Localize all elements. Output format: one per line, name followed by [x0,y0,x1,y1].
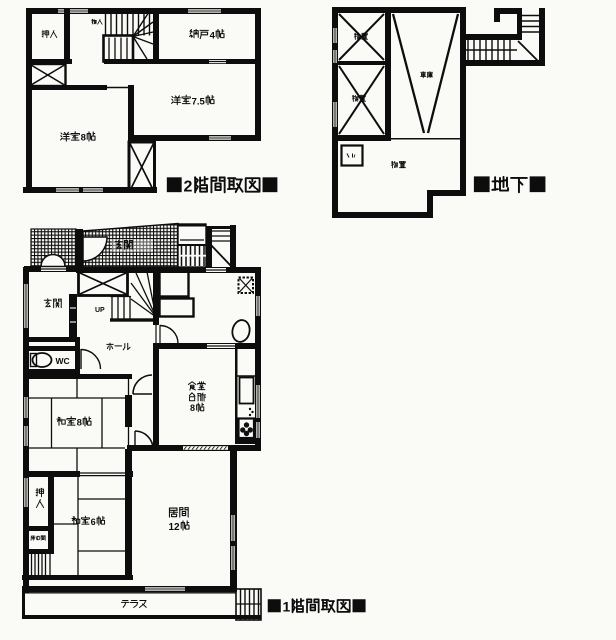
svg-text:12: 12 [169,522,181,533]
svg-text:8: 8 [81,133,86,144]
svg-text:UP: UP [95,307,105,314]
svg-text:2: 2 [184,179,193,196]
svg-text:4: 4 [210,31,216,42]
svg-text:8: 8 [190,403,195,413]
svg-text:8: 8 [77,418,82,429]
svg-text:7.5: 7.5 [192,96,206,107]
svg-text:1: 1 [283,599,291,615]
svg-text:WC: WC [56,356,70,366]
svg-text:6: 6 [91,517,96,527]
